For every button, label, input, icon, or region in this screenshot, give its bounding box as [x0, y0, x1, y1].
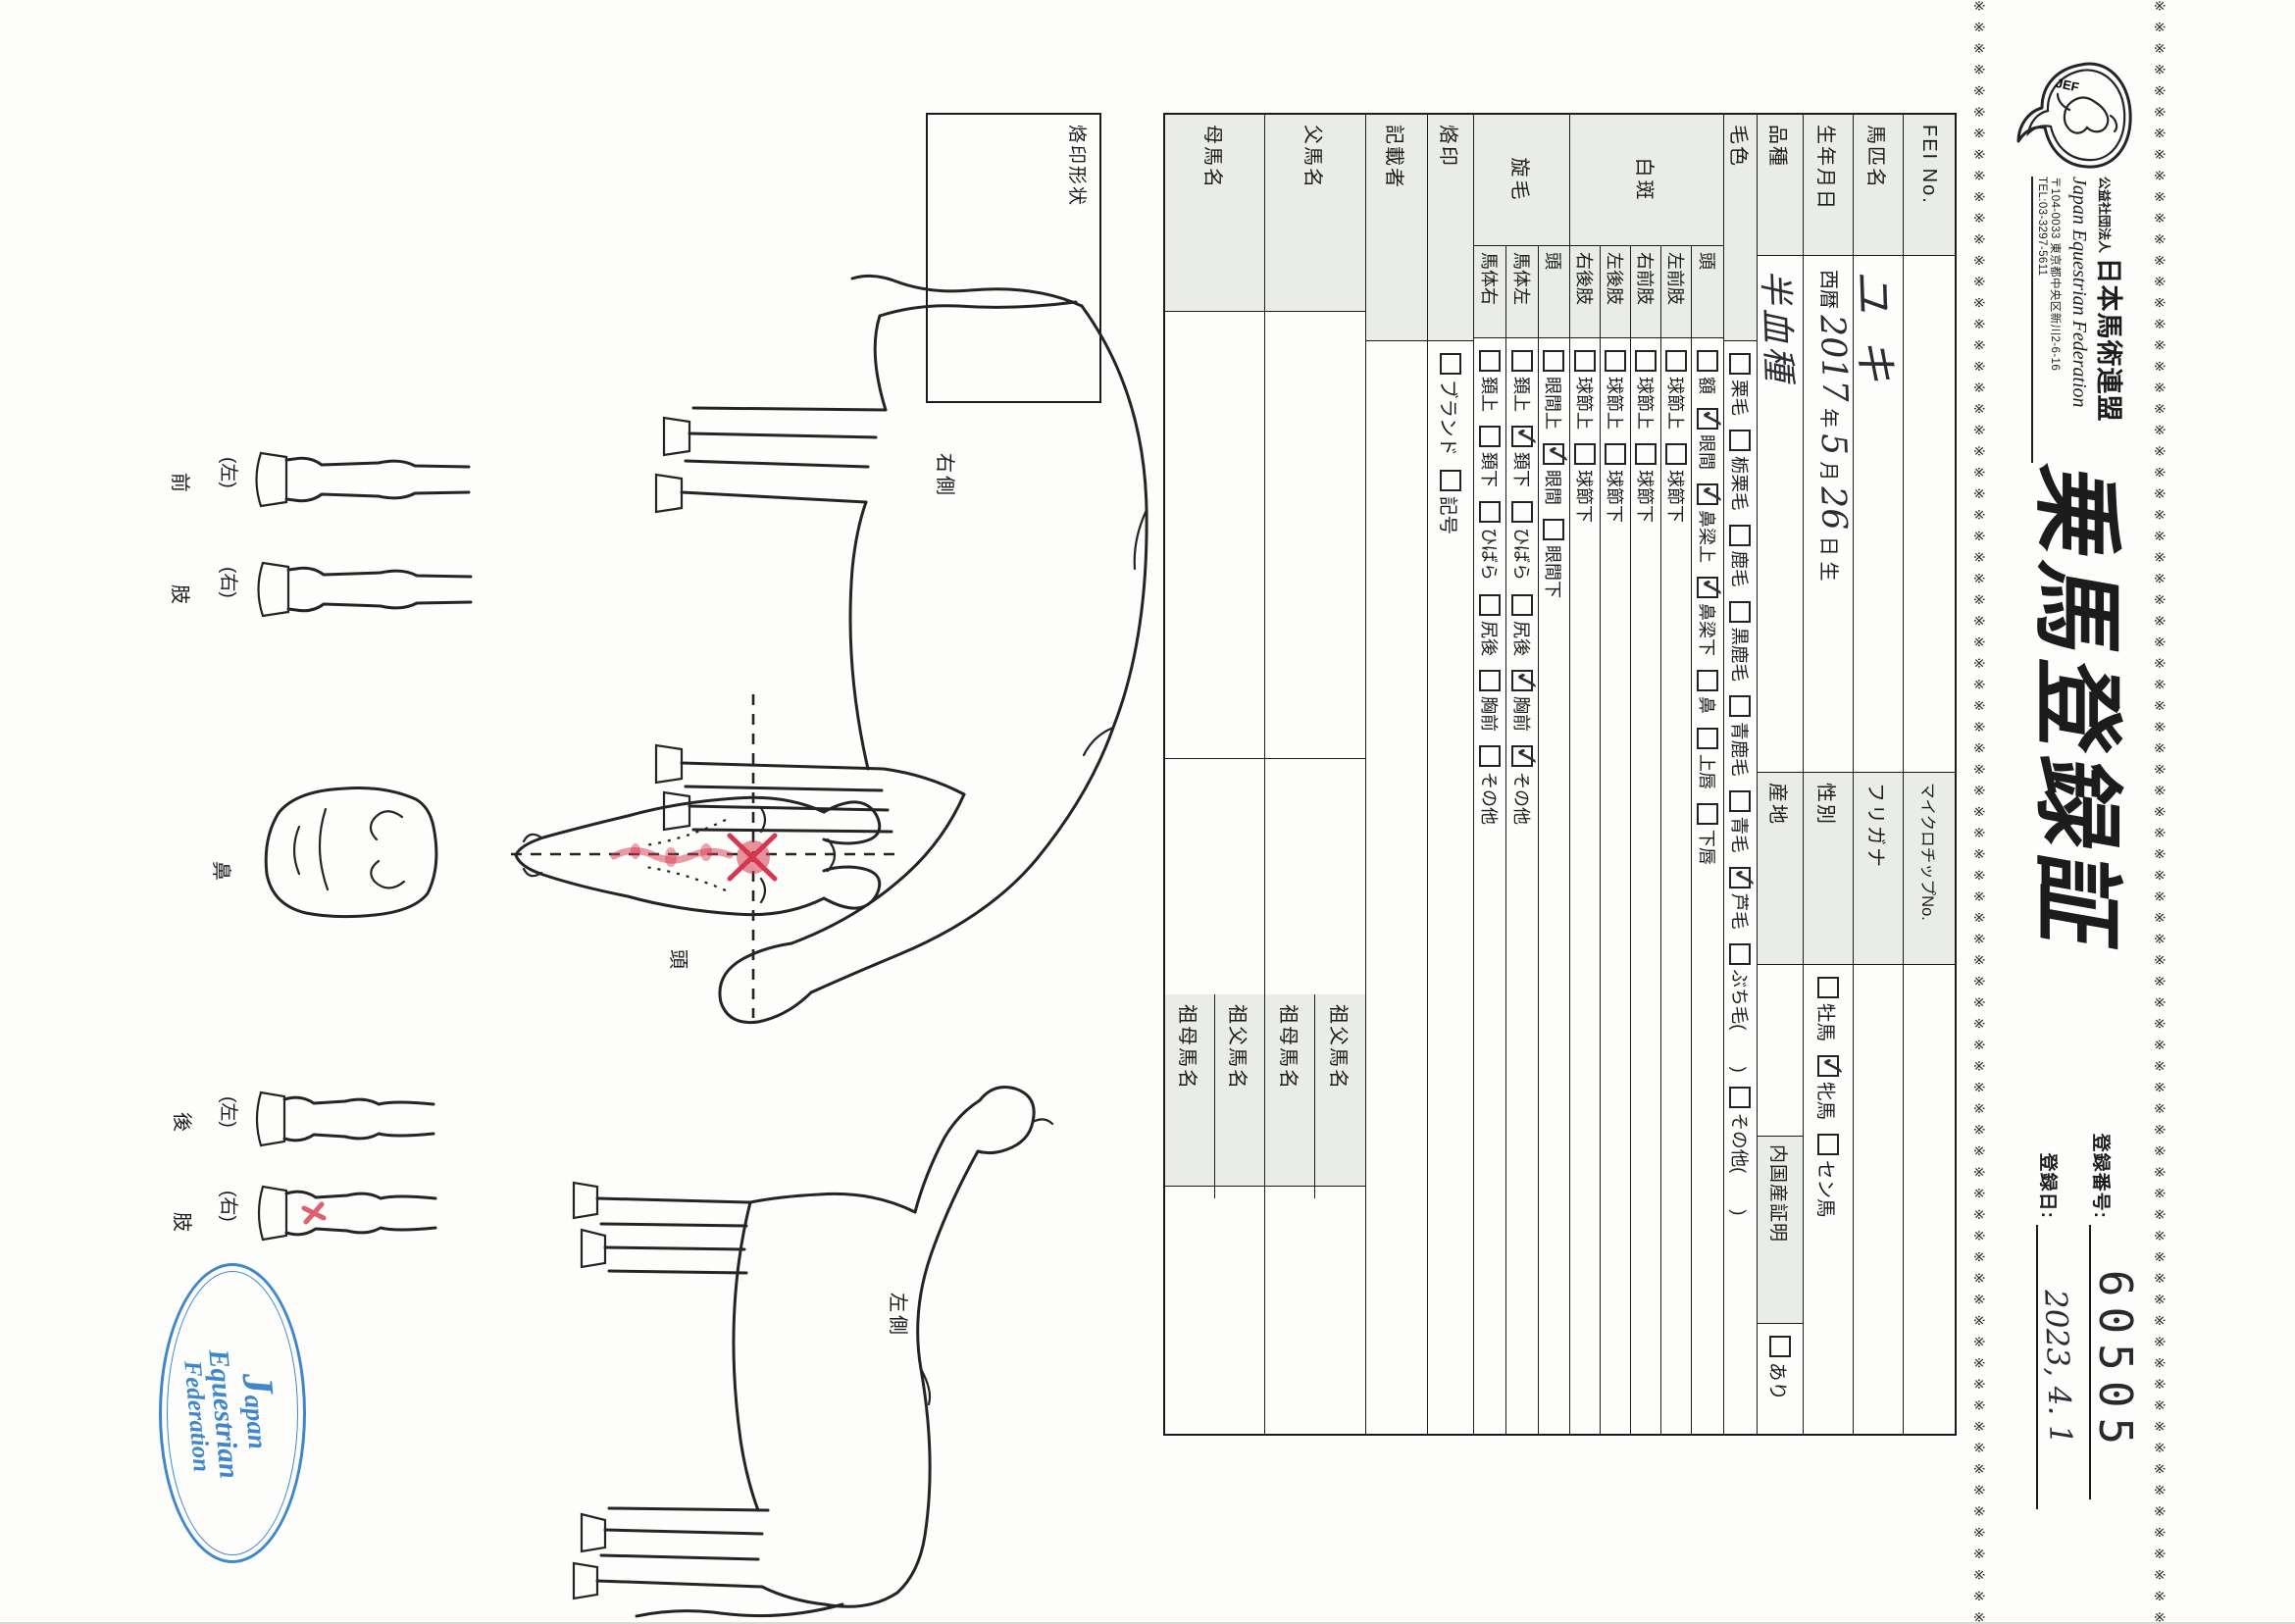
checkbox-option: ひばら	[1509, 501, 1535, 581]
checkbox-option: 球節上	[1633, 350, 1658, 430]
checkbox-option: 牡馬	[1814, 977, 1843, 1041]
checkbox-option: その他( )	[1728, 1087, 1754, 1216]
empty-checkbox	[1730, 525, 1752, 546]
white-markings-group-label: 白斑	[1570, 115, 1723, 246]
stamp-text: Japan Equestrian Federation	[146, 1257, 319, 1569]
left-side-view-label: 左側	[886, 1293, 914, 1338]
checkbox-option: 鼻梁下	[1695, 577, 1720, 656]
front-leg-left-figure	[255, 451, 469, 508]
checkbox-option: 尻後	[1477, 594, 1503, 656]
scanned-registration-certificate: { "page": { "border_glyph": "※", "header…	[0, 0, 2295, 1622]
maternal-grandsire-row: 祖父馬名	[1215, 994, 1264, 1198]
checkbox-option-label: 球節上	[1572, 377, 1598, 430]
right-foreleg-sublabel: 右前肢	[1631, 246, 1660, 337]
breed-value: 半血種	[1758, 255, 1803, 772]
checkbox-option-label: 下唇	[1695, 830, 1720, 865]
right-hindleg-row: 右後肢 球節上球節下	[1570, 246, 1601, 1434]
checked-checkbox	[1730, 867, 1752, 888]
checkbox-option-label: 頚上	[1477, 377, 1503, 412]
white-markings-group: 白斑 頭 額眼間鼻梁上鼻梁下鼻上唇下唇 左前肢 球節上球節下 右前肢 球節上球節…	[1570, 115, 1724, 1434]
checkbox-option: 球節下	[1603, 443, 1628, 523]
whorls-group: 旋毛 頭 眼間上眼間眼間下 馬体左 頚上頚下ひばら尻後胸前その他 馬体右 頚上頚…	[1474, 115, 1570, 1434]
checkbox-option-label: 鼻梁下	[1695, 603, 1720, 656]
checkbox-option-label: 黒鹿毛	[1728, 628, 1754, 683]
checkbox-option-label: 頚下	[1509, 452, 1535, 487]
checkbox-option: 頚下	[1509, 426, 1535, 487]
sire-label: 父馬名	[1265, 115, 1365, 311]
right-hindleg-options: 球節上球節下	[1570, 337, 1600, 1434]
origin-label: 産地	[1758, 772, 1803, 964]
empty-checkbox	[1574, 350, 1596, 372]
coat-color-options: 栗毛栃栗毛鹿毛黒鹿毛青鹿毛青毛芦毛ぶち毛( )その他( )	[1724, 340, 1757, 1434]
checkbox-option-label: 頚上	[1509, 377, 1535, 412]
checkbox-option-label: 球節下	[1603, 470, 1628, 523]
era-prefix: 西暦	[1816, 270, 1845, 309]
checkbox-option-label: 胸前	[1509, 696, 1535, 732]
checked-checkbox	[1817, 1055, 1839, 1077]
jef-logo: JEF	[1997, 51, 2140, 175]
checkbox-option: 鼻梁上	[1695, 483, 1720, 563]
empty-checkbox	[1730, 1087, 1752, 1108]
table-row-fei: FEI No. マイクロチップNo.	[1904, 115, 1955, 1434]
checkbox-option-label: 眼間下	[1542, 545, 1567, 598]
checkbox-option-label: 額	[1695, 377, 1720, 394]
breed-label: 品種	[1758, 115, 1803, 255]
asterisk-border-top: ※ ※ ※ ※ ※ ※ ※ ※ ※ ※ ※ ※ ※ ※ ※ ※ ※ ※ ※ ※ …	[2150, 0, 2169, 1622]
checkbox-option: 額	[1695, 350, 1720, 394]
empty-checkbox	[1730, 601, 1752, 623]
checkbox-option-label: 栃栗毛	[1728, 456, 1754, 511]
checkbox-option-label: 尻後	[1509, 621, 1535, 656]
left-hindleg-row: 左後肢 球節上球節下	[1601, 246, 1631, 1434]
checkbox-option: 球節上	[1572, 350, 1598, 430]
red-hindleg-mark	[304, 1204, 324, 1222]
whorls-group-label: 旋毛	[1474, 115, 1569, 246]
checkbox-option: 尻後	[1509, 594, 1535, 656]
empty-checkbox	[1697, 803, 1718, 825]
hind-leg-right-figure	[259, 1185, 435, 1243]
empty-checkbox	[1544, 519, 1565, 540]
domestic-cert-label: 内国産証明	[1758, 1136, 1803, 1323]
whorl-head-row: 頭 眼間上眼間眼間下	[1539, 246, 1569, 1434]
checkbox-option: 眼間下	[1542, 519, 1567, 598]
empty-checkbox	[1440, 470, 1461, 491]
empty-checkbox	[1605, 443, 1626, 465]
front-leg-right-figure	[257, 561, 471, 618]
maternal-granddam-value	[1165, 1186, 1214, 1198]
fei-no-value	[1904, 255, 1955, 772]
right-foreleg-options: 球節上球節下	[1631, 337, 1660, 1434]
empty-checkbox	[1479, 350, 1501, 372]
checkbox-option: ぶち毛( )	[1728, 943, 1754, 1073]
front-leg-right-label: (右)	[217, 567, 243, 598]
empty-checkbox	[1697, 728, 1718, 749]
checkbox-option: 頚上	[1509, 350, 1535, 412]
checkbox-option-label: その他	[1509, 772, 1535, 825]
empty-checkbox	[1730, 430, 1752, 451]
paternal-granddam-row: 祖母馬名	[1265, 994, 1316, 1198]
checkbox-option-label: ブランド	[1437, 380, 1465, 456]
whorl-body-right-sublabel: 馬体右	[1474, 246, 1505, 337]
certificate-page: ※ ※ ※ ※ ※ ※ ※ ※ ※ ※ ※ ※ ※ ※ ※ ※ ※ ※ ※ ※ …	[0, 0, 2295, 1622]
checkbox-option-label: 鼻	[1695, 696, 1720, 714]
empty-checkbox	[1511, 501, 1533, 523]
hind-leg-right-label: (右)	[217, 1191, 243, 1222]
checkbox-option: 栃栗毛	[1728, 430, 1754, 511]
sex-options: 牡馬牝馬セン馬	[1804, 964, 1853, 1434]
birth-year: 2017	[1811, 314, 1853, 402]
whorl-body-left-row: 馬体左 頚上頚下ひばら尻後胸前その他	[1506, 246, 1539, 1434]
right-hindleg-sublabel: 右後肢	[1570, 246, 1600, 337]
whorl-body-right-options: 頚上頚下ひばら尻後胸前その他	[1474, 337, 1505, 1434]
empty-checkbox	[1665, 443, 1687, 465]
checkbox-option: 栗毛	[1728, 353, 1754, 416]
checked-checkbox	[1697, 483, 1718, 505]
front-legs-word-1: 前	[168, 473, 196, 495]
birth-date-label: 生年月日	[1804, 115, 1853, 255]
empty-checkbox	[1605, 350, 1626, 372]
checkbox-option-label: 球節上	[1633, 377, 1658, 430]
empty-checkbox	[1730, 790, 1752, 812]
microchip-no-label: マイクロチップNo.	[1904, 772, 1955, 964]
checkbox-option: 記号	[1437, 470, 1465, 534]
org-block: 公益社団法人 日本馬術連盟 Japan Equestrian Federatio…	[2031, 177, 2130, 471]
checkbox-option-label: 頚下	[1477, 452, 1503, 487]
checkbox-option: 芦毛	[1728, 867, 1754, 930]
checkbox-option-label: 牡馬	[1814, 1003, 1843, 1041]
checkbox-option-label: その他	[1477, 772, 1503, 825]
recorder-value	[1366, 340, 1427, 1434]
left-hindleg-options: 球節上球節下	[1601, 337, 1630, 1434]
whorl-body-left-options: 頚上頚下ひばら尻後胸前その他	[1506, 337, 1538, 1434]
checkbox-option: 上唇	[1695, 728, 1720, 789]
checkbox-option-label: 球節下	[1633, 470, 1658, 523]
head-view-label: 頭	[666, 949, 694, 972]
sex-label: 性別	[1804, 772, 1853, 964]
checkbox-option: 胸前	[1509, 670, 1535, 732]
checkbox-option: 黒鹿毛	[1728, 601, 1754, 683]
paternal-grandsire-label: 祖父馬名	[1316, 994, 1366, 1186]
empty-checkbox	[1817, 1134, 1839, 1155]
whorl-head-options: 眼間上眼間眼間下	[1539, 337, 1569, 1434]
empty-checkbox	[1479, 670, 1501, 691]
maternal-grandsire-label: 祖父馬名	[1215, 994, 1264, 1186]
empty-checkbox	[1511, 350, 1533, 372]
checkbox-option-label: セン馬	[1814, 1160, 1843, 1218]
checkbox-option: 青毛	[1728, 790, 1754, 853]
registration-number-value: 60505	[2089, 1225, 2138, 1499]
empty-checkbox	[1817, 977, 1839, 998]
horse-muzzle-figure	[262, 780, 443, 922]
checkbox-option: 眼間	[1695, 408, 1720, 470]
empty-checkbox	[1440, 353, 1461, 375]
checkbox-option: その他	[1509, 745, 1535, 825]
empty-checkbox	[1697, 350, 1718, 372]
coat-color-label: 毛色	[1724, 115, 1757, 340]
checkbox-option-label: 尻後	[1477, 621, 1503, 656]
hind-leg-left-figure	[257, 1091, 433, 1149]
checkbox-option-label: 球節上	[1603, 377, 1628, 430]
empty-checkbox	[1769, 1336, 1791, 1357]
right-side-view-label: 右側	[933, 453, 961, 498]
registration-date-label: 登録日:	[2036, 1093, 2063, 1219]
furigana-label: フリガナ	[1854, 772, 1903, 964]
hind-legs-word-1: 後	[170, 1112, 198, 1135]
org-telephone: TEL:03-3297-5611	[2036, 177, 2048, 471]
left-foreleg-options: 球節上球節下	[1661, 337, 1691, 1434]
checkbox-option: その他	[1477, 745, 1503, 825]
brand-options: ブランド記号	[1428, 340, 1473, 1434]
domestic-cert-options: あり	[1758, 1323, 1803, 1434]
horse-name-value: ユキ	[1854, 255, 1903, 772]
checkbox-option: 牝馬	[1814, 1055, 1843, 1120]
empty-checkbox	[1479, 594, 1501, 616]
checkbox-option-label: ぶち毛( )	[1728, 970, 1754, 1073]
checkbox-option-label: ひばら	[1509, 528, 1535, 581]
left-foreleg-sublabel: 左前肢	[1661, 246, 1691, 337]
checkbox-option: 球節下	[1572, 443, 1598, 523]
registration-number-label: 登録番号:	[2089, 1093, 2116, 1219]
checkbox-option-label: 眼間	[1542, 470, 1567, 505]
sire-value	[1265, 311, 1365, 758]
birth-date-value: 西暦 2017 年 5 月 26 日 生	[1804, 255, 1853, 772]
checkbox-option-label: 鼻梁上	[1695, 510, 1720, 563]
horse-head-front-figure	[502, 753, 885, 959]
checkbox-option-label: 上唇	[1695, 754, 1720, 789]
head-marking-options: 額眼間鼻梁上鼻梁下鼻上唇下唇	[1692, 337, 1723, 1434]
org-name-english: Japan Equestrian Federation	[2067, 177, 2090, 471]
birth-day: 26	[1812, 486, 1853, 532]
checked-checkbox	[1697, 408, 1718, 430]
empty-checkbox	[1479, 501, 1501, 523]
checkbox-option-label: ひばら	[1477, 528, 1503, 581]
white-markings-head-row: 頭 額眼間鼻梁上鼻梁下鼻上唇下唇	[1692, 246, 1723, 1434]
table-row-horse-name: 馬匹名 ユキ フリガナ	[1854, 115, 1904, 1434]
empty-checkbox	[1574, 443, 1596, 465]
empty-checkbox	[1544, 350, 1565, 372]
checkbox-option: 鼻	[1695, 670, 1720, 714]
checkbox-option-label: あり	[1766, 1362, 1795, 1400]
brand-label: 烙印	[1428, 115, 1473, 340]
checkbox-option: 下唇	[1695, 803, 1720, 865]
fei-no-label: FEI No.	[1904, 115, 1955, 255]
checkbox-option-label: 牝馬	[1814, 1082, 1843, 1120]
empty-checkbox	[1730, 943, 1752, 965]
empty-checkbox	[1730, 353, 1752, 375]
horse-left-side-figure	[554, 1067, 1074, 1616]
recorder-row: 記載者	[1366, 115, 1428, 1434]
empty-checkbox	[1635, 350, 1657, 372]
paternal-grandsire-row: 祖父馬名	[1316, 994, 1366, 1198]
empty-checkbox	[1479, 745, 1501, 767]
registration-date-value: 2023, 4. 1	[2036, 1225, 2075, 1509]
checkbox-option-label: 球節下	[1572, 470, 1598, 523]
muzzle-view-label: 鼻	[209, 861, 237, 884]
checkbox-option: ブランド	[1437, 353, 1465, 456]
asterisk-border-bottom: ※ ※ ※ ※ ※ ※ ※ ※ ※ ※ ※ ※ ※ ※ ※ ※ ※ ※ ※ ※ …	[1969, 0, 1989, 1622]
horse-name-label: 馬匹名	[1854, 115, 1903, 255]
checked-checkbox	[1697, 577, 1718, 598]
registration-block: 登録番号: 60505 登録日: 2023, 4. 1	[2022, 1093, 2138, 1554]
head-sublabel: 頭	[1692, 246, 1723, 337]
maternal-grandsire-value	[1215, 1186, 1264, 1198]
paternal-granddam-label: 祖母馬名	[1265, 994, 1315, 1186]
empty-checkbox	[1635, 443, 1657, 465]
checkbox-option: 胸前	[1477, 670, 1503, 732]
sire-row: 父馬名 祖父馬名 祖母馬名	[1265, 115, 1366, 1434]
front-leg-left-label: (左)	[217, 457, 243, 488]
checkbox-option: 球節上	[1603, 350, 1628, 430]
checkbox-option: 眼間上	[1542, 350, 1567, 430]
hind-legs-word-2: 肢	[170, 1212, 198, 1235]
certificate-title: 乗馬登録証	[2019, 457, 2150, 965]
checkbox-option-label: 眼間	[1695, 434, 1720, 470]
checkbox-option-label: 球節上	[1663, 377, 1689, 430]
whorl-head-sublabel: 頭	[1539, 246, 1569, 337]
checkbox-option-label: その他( )	[1728, 1113, 1754, 1216]
checkbox-option: 球節下	[1633, 443, 1658, 523]
checkbox-option-label: 栗毛	[1728, 380, 1754, 416]
jef-logo-text: JEF	[2055, 76, 2080, 95]
org-address: 〒104-0033 東京都中央区新川2-6-16	[2048, 177, 2064, 471]
checked-checkbox	[1511, 745, 1533, 767]
checked-checkbox	[1511, 670, 1533, 691]
checkbox-option: 青鹿毛	[1728, 695, 1754, 777]
birth-month: 5	[1813, 432, 1853, 456]
left-hindleg-sublabel: 左後肢	[1601, 246, 1630, 337]
empty-checkbox	[1665, 350, 1687, 372]
furigana-value	[1854, 964, 1903, 1434]
checkbox-option: あり	[1766, 1336, 1795, 1400]
checkbox-option-label: 芦毛	[1728, 893, 1754, 930]
empty-checkbox	[1479, 426, 1501, 447]
jef-blue-stamp: Japan Equestrian Federation	[159, 1263, 306, 1563]
checkbox-option: 鹿毛	[1728, 525, 1754, 587]
checkbox-option-label: 青鹿毛	[1728, 722, 1754, 777]
right-foreleg-row: 右前肢 球節上球節下	[1631, 246, 1661, 1434]
checkbox-option-label: 鹿毛	[1728, 551, 1754, 587]
table-row-coat-color: 毛色 栗毛栃栗毛鹿毛黒鹿毛青鹿毛青毛芦毛ぶち毛( )その他( )	[1724, 115, 1758, 1434]
empty-checkbox	[1697, 670, 1718, 691]
front-legs-word-2: 肢	[168, 584, 196, 607]
microchip-no-value	[1904, 964, 1955, 1434]
whorl-body-left-sublabel: 馬体左	[1506, 246, 1538, 337]
paternal-grandsire-value	[1316, 1186, 1366, 1198]
empty-checkbox	[1730, 695, 1752, 717]
checkbox-option: 頚上	[1477, 350, 1503, 412]
registration-table: FEI No. マイクロチップNo. 馬匹名 ユキ フリガナ 生年月日 西暦 2…	[1163, 113, 1957, 1436]
checkbox-option-label: 胸前	[1477, 696, 1503, 732]
checkbox-option: 頚下	[1477, 426, 1503, 487]
brand-row: 烙印 ブランド記号	[1428, 115, 1474, 1434]
table-row-birth-sex: 生年月日 西暦 2017 年 5 月 26 日 生 性別 牡馬牝馬セン馬	[1804, 115, 1854, 1434]
checkbox-option: ひばら	[1477, 501, 1503, 581]
checkbox-option-label: 青毛	[1728, 817, 1754, 853]
checkbox-option: 眼間	[1542, 443, 1567, 505]
table-row-breed-origin: 品種 半血種 産地 内国産証明 あり	[1758, 115, 1804, 1434]
checkbox-option: 球節上	[1663, 350, 1689, 430]
org-name: 日本馬術連盟	[2094, 257, 2123, 422]
hind-leg-left-label: (左)	[217, 1096, 243, 1128]
empty-checkbox	[1511, 594, 1533, 616]
checkbox-option-label: 記号	[1437, 496, 1465, 534]
checkbox-option: 球節下	[1663, 443, 1689, 523]
checkbox-option-label: 眼間上	[1542, 377, 1567, 430]
checked-checkbox	[1544, 443, 1565, 465]
org-prefix: 公益社団法人	[2097, 177, 2112, 253]
whorl-body-right-row: 馬体右 頚上頚下ひばら尻後胸前その他	[1474, 246, 1506, 1434]
recorder-label: 記載者	[1366, 115, 1427, 340]
paternal-granddam-value	[1265, 1186, 1315, 1198]
checkbox-option-label: 球節下	[1663, 470, 1689, 523]
left-foreleg-row: 左前肢 球節上球節下	[1661, 246, 1692, 1434]
checkbox-option: セン馬	[1814, 1134, 1843, 1218]
org-underline	[2031, 177, 2033, 463]
checked-checkbox	[1511, 426, 1533, 447]
